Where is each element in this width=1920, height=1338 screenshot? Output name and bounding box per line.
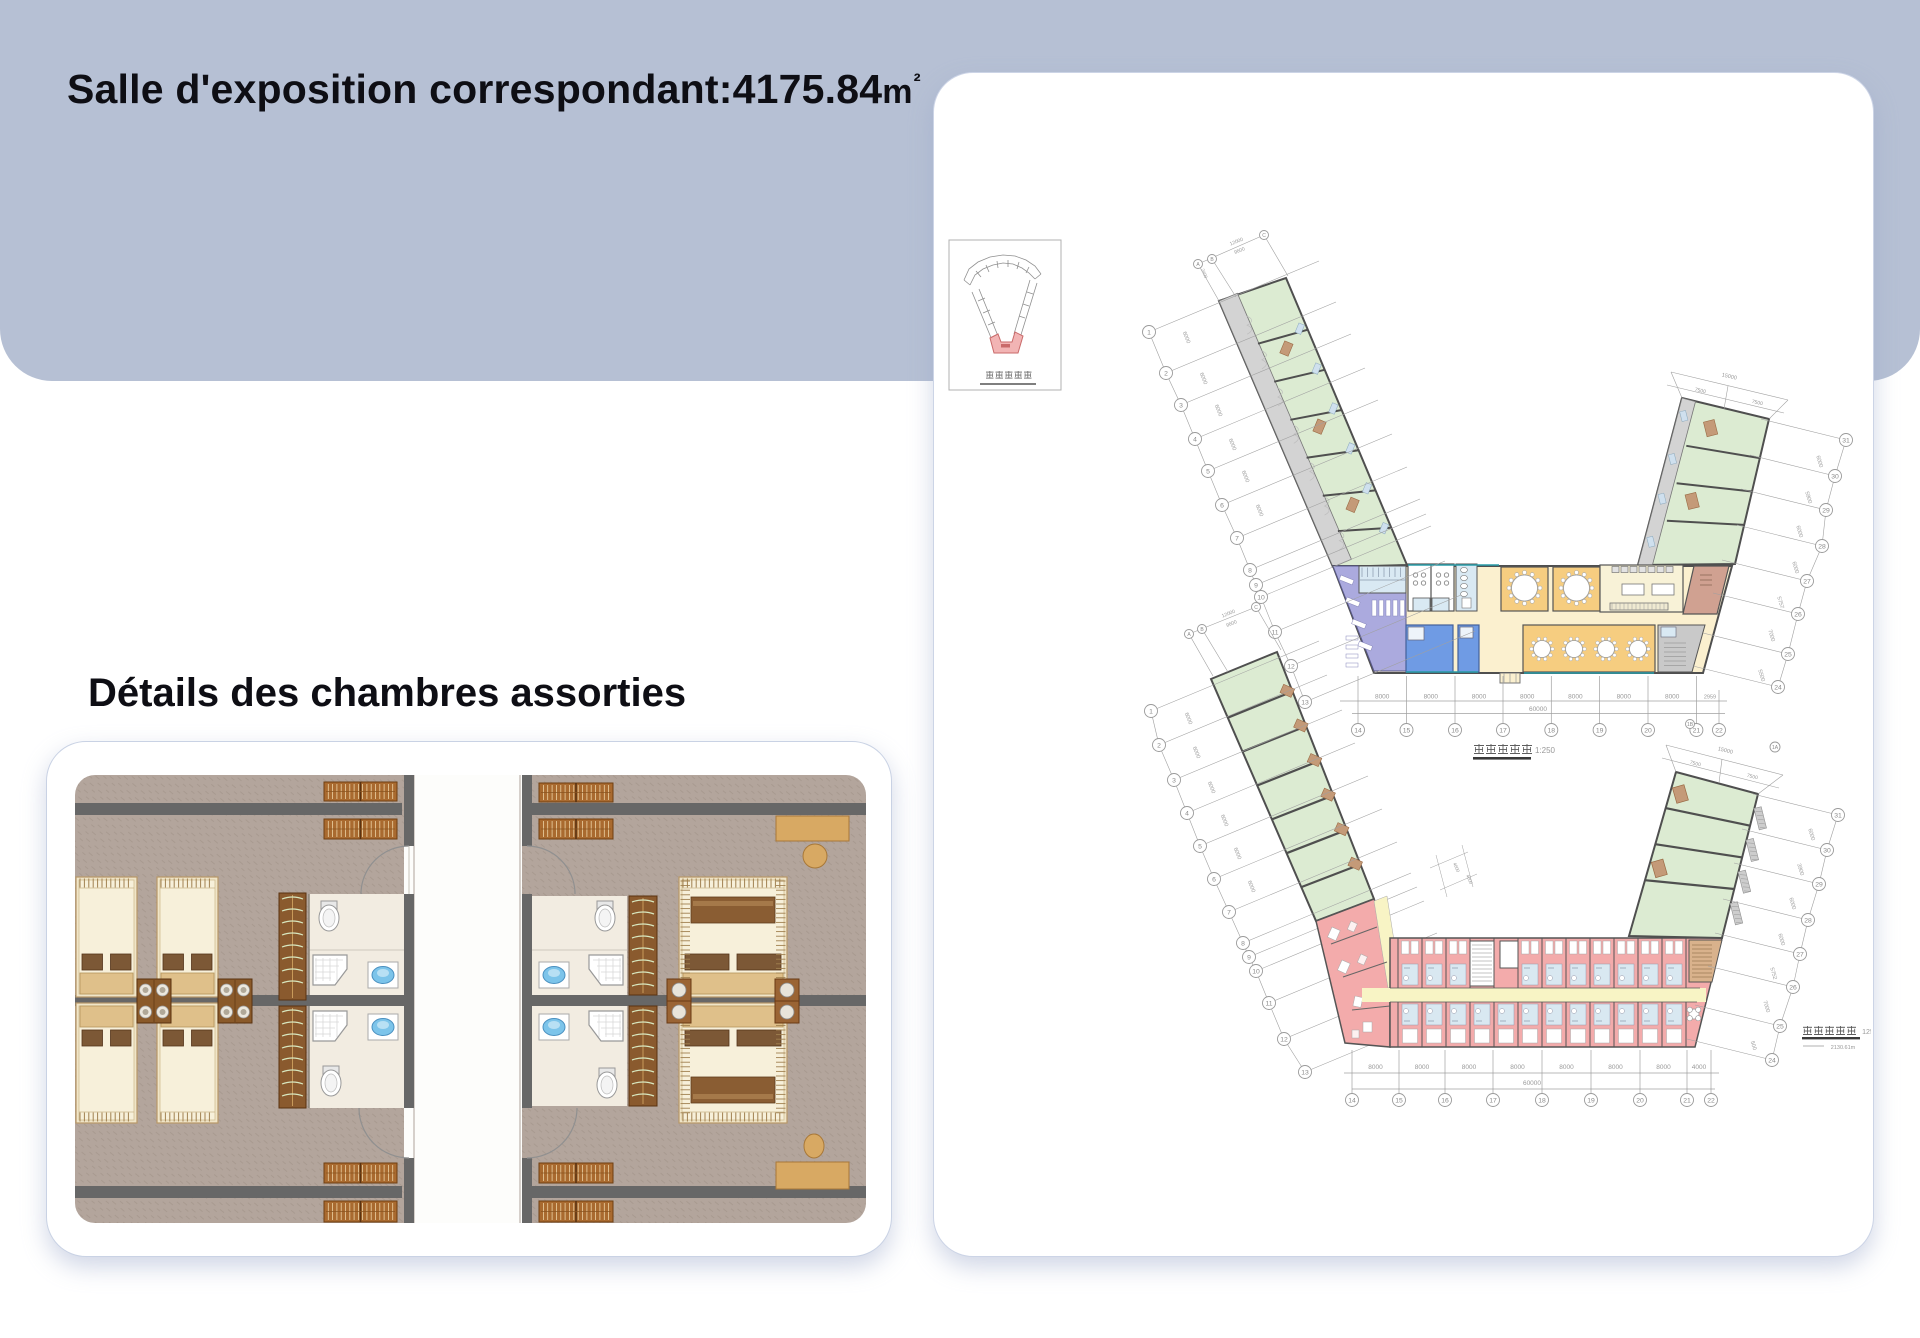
svg-text:9: 9	[1254, 582, 1258, 589]
svg-text:27: 27	[1796, 951, 1804, 958]
svg-text:C: C	[1262, 233, 1266, 239]
svg-text:6000: 6000	[1213, 404, 1223, 418]
svg-text:5752: 5752	[1768, 967, 1777, 980]
svg-text:11: 11	[1265, 1000, 1272, 1007]
svg-text:7500: 7500	[1751, 399, 1763, 407]
svg-text:15: 15	[1403, 727, 1411, 734]
svg-text:8: 8	[1248, 567, 1252, 574]
svg-text:18: 18	[1548, 727, 1556, 734]
svg-text:9: 9	[1247, 954, 1251, 961]
svg-text:12: 12	[1280, 1036, 1288, 1043]
svg-text:17: 17	[1489, 1097, 1497, 1104]
svg-text:26: 26	[1794, 611, 1802, 618]
svg-text:1B: 1B	[1687, 722, 1694, 728]
svg-text:29: 29	[1815, 881, 1823, 888]
svg-text:C: C	[1254, 605, 1258, 611]
svg-text:8000: 8000	[1368, 1064, 1383, 1071]
svg-text:2130.61m: 2130.61m	[1831, 1045, 1856, 1051]
svg-text:3: 3	[1179, 402, 1183, 409]
svg-text:3: 3	[1172, 777, 1176, 784]
svg-text:5: 5	[1206, 468, 1210, 475]
svg-text:21: 21	[1693, 727, 1701, 734]
svg-text:7500: 7500	[1694, 387, 1706, 395]
svg-text:8000: 8000	[1510, 1064, 1525, 1071]
svg-text:31: 31	[1834, 812, 1842, 819]
svg-text:6000: 6000	[1191, 746, 1201, 760]
svg-text:6000: 6000	[1806, 828, 1815, 841]
svg-text:24: 24	[1768, 1057, 1776, 1064]
svg-text:6000: 6000	[1227, 438, 1237, 452]
svg-text:5500: 5500	[1756, 669, 1765, 682]
svg-text:6000: 6000	[1232, 847, 1242, 861]
svg-text:14: 14	[1348, 1097, 1356, 1104]
svg-text:15: 15	[1395, 1097, 1403, 1104]
svg-text:7500: 7500	[1689, 760, 1701, 769]
svg-text:15000: 15000	[1717, 746, 1733, 756]
svg-text:6000: 6000	[1790, 561, 1799, 574]
svg-text:6000: 6000	[1219, 814, 1229, 828]
svg-text:8: 8	[1241, 940, 1245, 947]
svg-text:1: 1	[1147, 329, 1151, 336]
svg-text:4000: 4000	[1692, 1064, 1707, 1071]
svg-text:2: 2	[1157, 742, 1161, 749]
svg-text:8000: 8000	[1617, 694, 1632, 701]
svg-text:6000: 6000	[1254, 504, 1264, 518]
svg-text:19: 19	[1587, 1097, 1595, 1104]
svg-text:8000: 8000	[1415, 1064, 1430, 1071]
svg-text:6000: 6000	[1198, 372, 1208, 386]
svg-text:60000: 60000	[1529, 706, 1547, 713]
svg-text:21: 21	[1683, 1097, 1691, 1104]
svg-text:25: 25	[1784, 651, 1792, 658]
svg-text:8000: 8000	[1520, 694, 1535, 701]
svg-text:4: 4	[1185, 810, 1189, 817]
svg-text:6: 6	[1212, 876, 1216, 883]
svg-text:6: 6	[1220, 502, 1224, 509]
svg-text:4000: 4000	[1465, 874, 1474, 886]
svg-text:500: 500	[1749, 1040, 1757, 1051]
svg-text:1:250: 1:250	[1535, 746, 1556, 755]
svg-text:9600: 9600	[1225, 619, 1238, 629]
svg-text:26: 26	[1789, 984, 1797, 991]
svg-text:28: 28	[1804, 917, 1812, 924]
svg-text:10: 10	[1257, 594, 1265, 601]
svg-text:7: 7	[1235, 535, 1239, 542]
svg-text:7: 7	[1227, 909, 1231, 916]
svg-text:6000: 6000	[1776, 933, 1785, 946]
svg-text:125: 125	[1862, 1029, 1871, 1036]
svg-text:2: 2	[1164, 370, 1168, 377]
svg-text:8000: 8000	[1559, 1064, 1574, 1071]
svg-text:2959: 2959	[1704, 695, 1716, 701]
svg-text:30: 30	[1831, 473, 1839, 480]
svg-text:27: 27	[1803, 578, 1811, 585]
svg-text:17: 17	[1499, 727, 1507, 734]
svg-text:2400: 2400	[1200, 268, 1209, 280]
svg-text:1A: 1A	[1772, 745, 1779, 751]
svg-text:18: 18	[1538, 1097, 1546, 1104]
svg-text:6000: 6000	[1246, 880, 1256, 894]
svg-text:8000: 8000	[1568, 694, 1583, 701]
svg-text:16: 16	[1441, 1097, 1449, 1104]
svg-text:30: 30	[1823, 847, 1831, 854]
svg-text:6000: 6000	[1181, 331, 1191, 345]
svg-text:22: 22	[1715, 727, 1723, 734]
svg-text:1: 1	[1149, 708, 1153, 715]
svg-text:4000: 4000	[1452, 862, 1461, 874]
svg-text:13: 13	[1301, 1069, 1309, 1076]
svg-text:20: 20	[1636, 1097, 1644, 1104]
svg-text:8000: 8000	[1462, 1064, 1477, 1071]
svg-text:8000: 8000	[1608, 1064, 1623, 1071]
svg-text:13: 13	[1301, 699, 1309, 706]
svg-text:12: 12	[1287, 663, 1295, 670]
svg-text:22: 22	[1707, 1097, 1715, 1104]
svg-text:6000: 6000	[1794, 525, 1803, 538]
svg-text:15000: 15000	[1721, 372, 1737, 381]
svg-text:5: 5	[1198, 843, 1202, 850]
svg-text:14: 14	[1354, 727, 1362, 734]
svg-text:5900: 5900	[1803, 491, 1812, 504]
svg-text:7000: 7000	[1761, 1000, 1770, 1013]
svg-text:8000: 8000	[1424, 694, 1439, 701]
svg-text:6000: 6000	[1814, 455, 1823, 468]
svg-text:8000: 8000	[1472, 694, 1487, 701]
svg-text:6000: 6000	[1183, 712, 1193, 726]
svg-text:19: 19	[1596, 727, 1604, 734]
svg-text:16: 16	[1451, 727, 1459, 734]
svg-text:5757: 5757	[1775, 596, 1784, 609]
svg-text:25: 25	[1776, 1023, 1784, 1030]
svg-text:8000: 8000	[1375, 694, 1390, 701]
svg-text:24: 24	[1774, 684, 1782, 691]
svg-text:6000: 6000	[1787, 897, 1796, 910]
svg-text:4: 4	[1193, 436, 1197, 443]
svg-text:31: 31	[1842, 437, 1850, 444]
svg-text:8000: 8000	[1656, 1064, 1671, 1071]
svg-text:28: 28	[1818, 543, 1826, 550]
svg-text:10: 10	[1252, 968, 1260, 975]
svg-text:20: 20	[1644, 727, 1652, 734]
svg-text:29: 29	[1822, 507, 1830, 514]
svg-text:60000: 60000	[1523, 1080, 1541, 1087]
svg-text:6000: 6000	[1240, 470, 1250, 484]
svg-text:6000: 6000	[1206, 781, 1216, 795]
svg-text:3900: 3900	[1795, 863, 1804, 876]
svg-text:7000: 7000	[1766, 629, 1775, 642]
svg-text:8000: 8000	[1665, 694, 1680, 701]
